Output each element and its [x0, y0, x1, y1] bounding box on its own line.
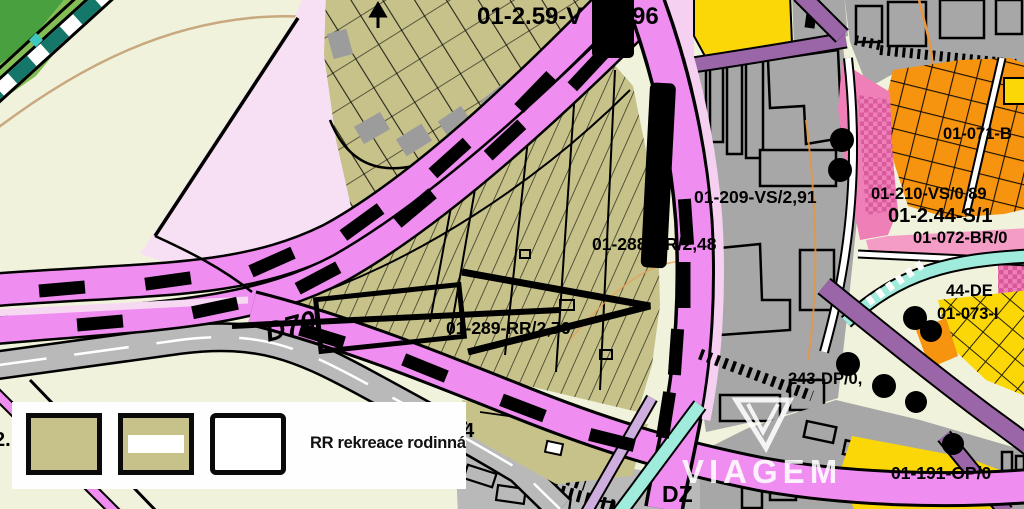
- zone-label-01-209-vs: 01-209-VS/2,91: [694, 187, 817, 207]
- legend-swatch-stripe: [128, 435, 184, 453]
- zone-label-3-96: 3,96: [612, 3, 659, 30]
- zone-label-01-073: 01-073-I: [937, 305, 998, 323]
- zone-label-01-289-rr: 01-289-RR/2,76: [446, 318, 571, 338]
- legend-panel: RR rekreace rodinná: [12, 402, 466, 489]
- zone-label-01-2-44-s: 01-2.44-S/1: [888, 205, 993, 227]
- watermark-text: VIAGEM: [682, 453, 842, 490]
- zone-label-244-de: 44-DE: [946, 282, 993, 300]
- zone-label-01-071-b: 01-071-B: [943, 125, 1012, 143]
- zone-label-01-210-vs: 01-210-VS/0,89: [871, 185, 987, 203]
- legend-swatch-striped: [118, 413, 194, 475]
- label-fragment-2: 2.: [0, 429, 11, 451]
- map-viewport: 01-2.59-V 3,96 01-288-RR/2,48 01-289-RR/…: [0, 0, 1024, 509]
- zone-label-01-191-op: 01-191-OP/0: [891, 463, 991, 483]
- zone-label-01-2-59-v: 01-2.59-V: [477, 3, 582, 30]
- legend-caption: RR rekreace rodinná: [310, 434, 466, 453]
- zone-label-01-072-br: 01-072-BR/0: [913, 229, 1007, 247]
- legend-swatch-solid: [26, 413, 102, 475]
- legend-swatch-outline: [210, 413, 286, 475]
